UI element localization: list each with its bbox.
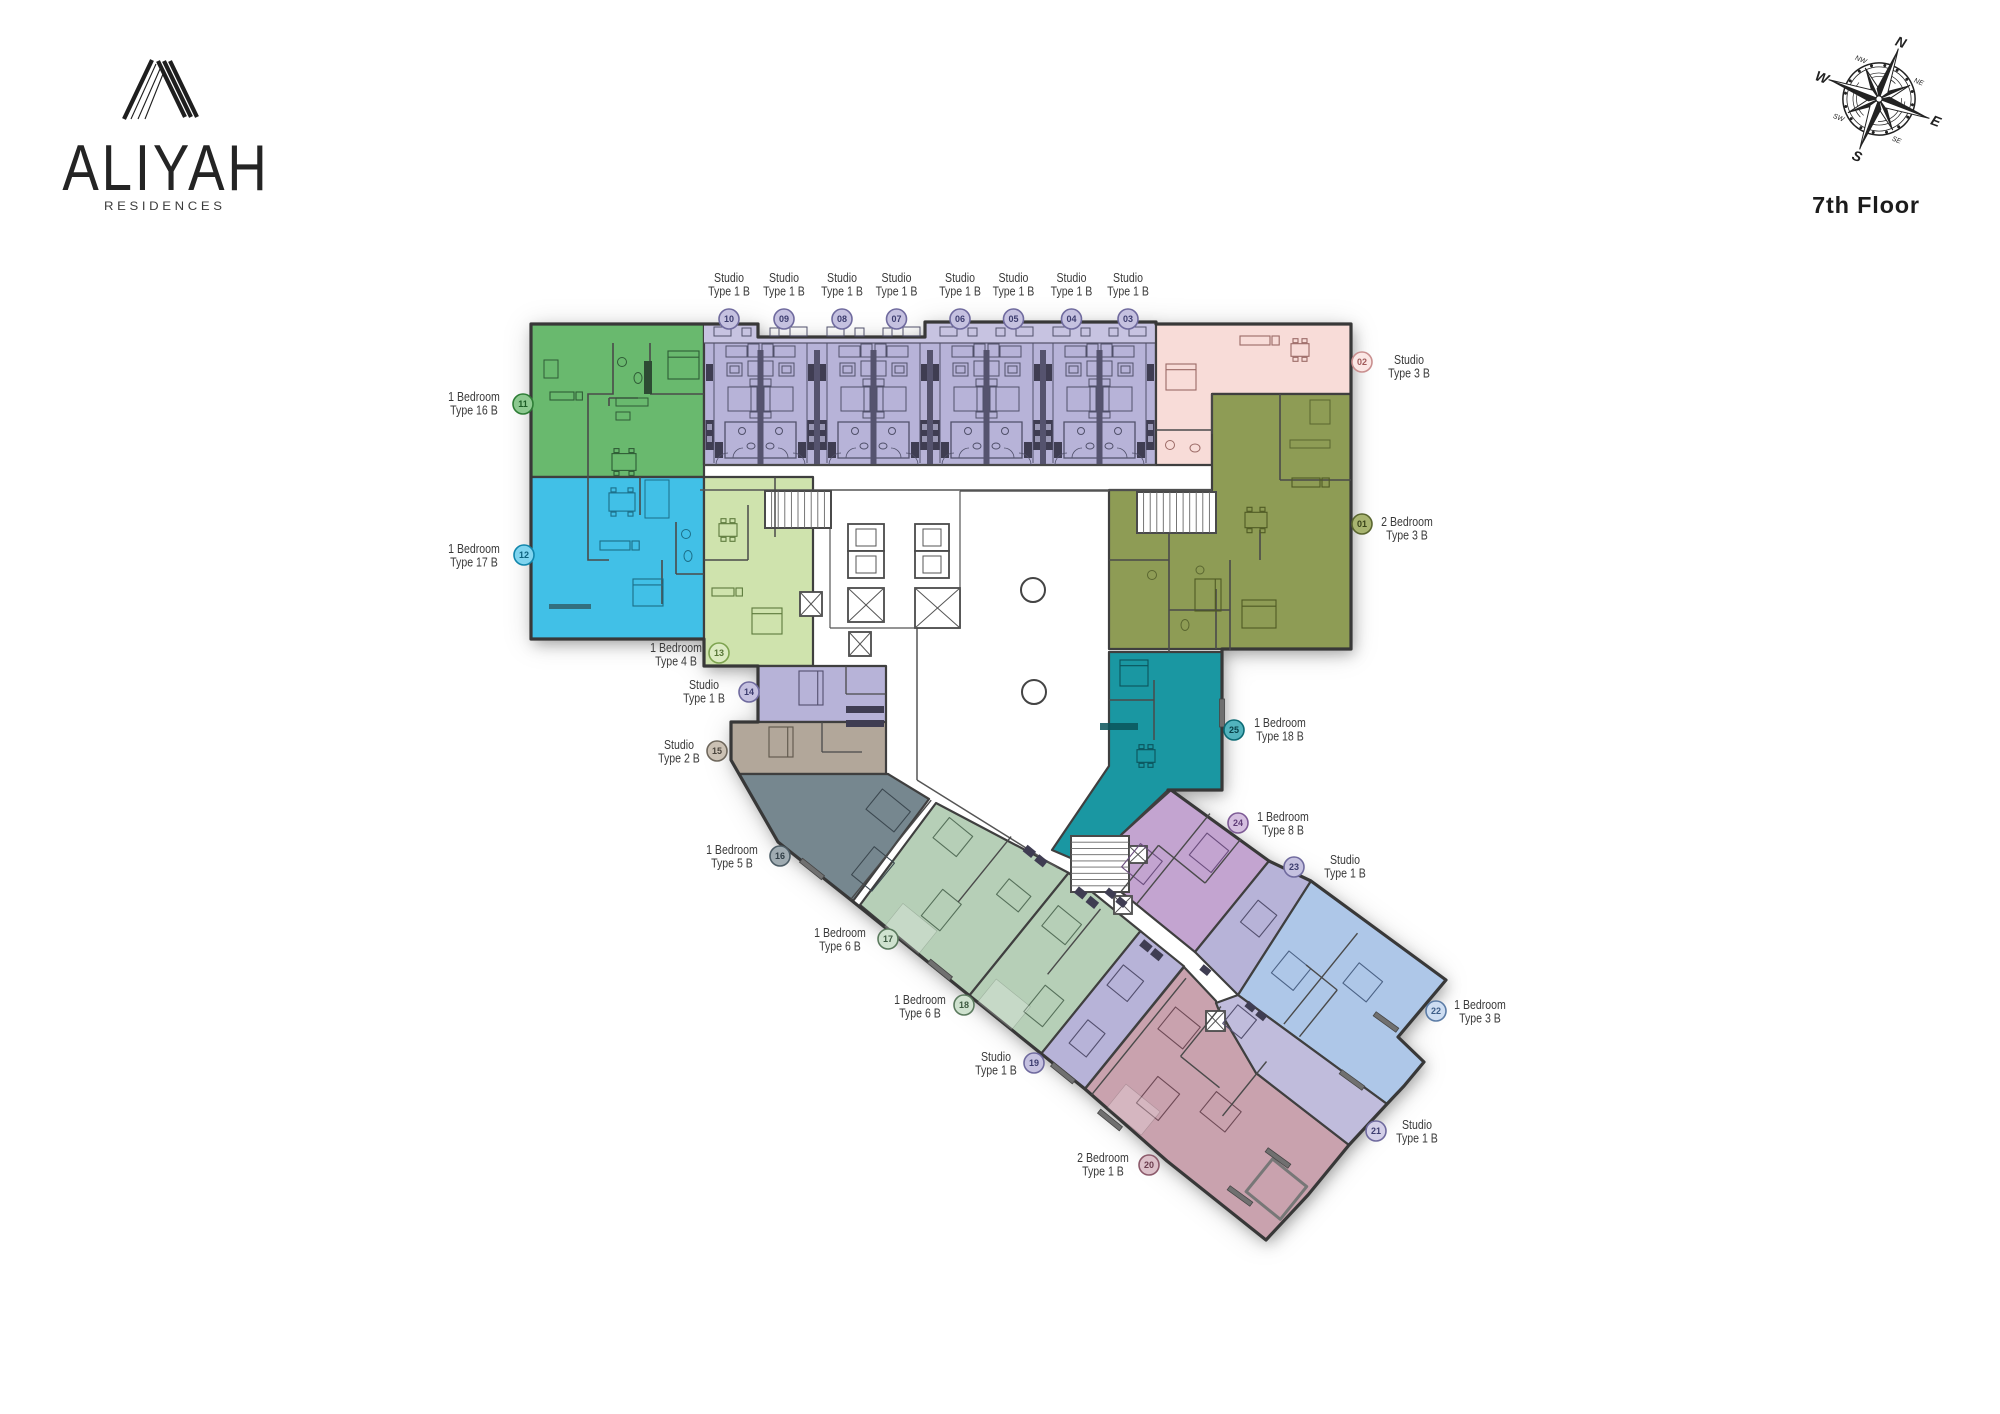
svg-text:Type 16 B: Type 16 B [450,404,498,418]
svg-text:Type 1 B: Type 1 B [993,285,1035,299]
svg-text:11: 11 [518,399,528,409]
svg-text:20: 20 [1144,1160,1154,1170]
svg-text:10: 10 [724,314,734,324]
svg-text:Type 8 B: Type 8 B [1262,824,1304,838]
svg-text:16: 16 [775,851,785,861]
svg-text:Type 6 B: Type 6 B [819,940,861,954]
svg-text:Type 1 B: Type 1 B [876,285,918,299]
svg-text:09: 09 [779,314,789,324]
svg-text:Type 1 B: Type 1 B [763,285,805,299]
svg-text:Type 1 B: Type 1 B [1082,1165,1124,1179]
svg-text:Studio: Studio [769,271,799,285]
svg-text:Studio: Studio [1402,1118,1432,1132]
svg-text:Studio: Studio [1394,353,1424,367]
svg-text:Studio: Studio [1113,271,1143,285]
svg-text:1 Bedroom: 1 Bedroom [894,993,946,1007]
svg-text:24: 24 [1233,818,1243,828]
svg-text:Type 1 B: Type 1 B [1324,867,1366,881]
svg-text:Type 3 B: Type 3 B [1459,1012,1501,1026]
svg-text:Type 1 B: Type 1 B [821,285,863,299]
svg-text:02: 02 [1357,357,1367,367]
svg-text:Type 17 B: Type 17 B [450,556,498,570]
svg-text:13: 13 [714,648,724,658]
svg-text:2 Bedroom: 2 Bedroom [1077,1151,1129,1165]
svg-text:1 Bedroom: 1 Bedroom [1254,716,1306,730]
svg-text:1 Bedroom: 1 Bedroom [814,926,866,940]
svg-text:1 Bedroom: 1 Bedroom [1257,810,1309,824]
svg-text:R E S I D E N C E S: R E S I D E N C E S [104,201,222,213]
svg-text:05: 05 [1008,314,1018,324]
svg-text:21: 21 [1371,1126,1381,1136]
svg-text:1 Bedroom: 1 Bedroom [650,641,702,655]
svg-text:ALIYAH: ALIYAH [62,132,269,205]
svg-text:Type 1 B: Type 1 B [1396,1132,1438,1146]
svg-text:Type 4 B: Type 4 B [655,655,697,669]
svg-text:12: 12 [519,550,529,560]
svg-text:Type 1 B: Type 1 B [975,1064,1017,1078]
svg-text:04: 04 [1066,314,1076,324]
svg-text:03: 03 [1123,314,1133,324]
svg-text:7th Floor: 7th Floor [1812,192,1920,218]
svg-text:Studio: Studio [827,271,857,285]
svg-text:Studio: Studio [689,678,719,692]
svg-text:Type 5 B: Type 5 B [711,857,753,871]
svg-text:Type 2 B: Type 2 B [658,752,700,766]
svg-text:19: 19 [1029,1058,1039,1068]
svg-text:2 Bedroom: 2 Bedroom [1381,515,1433,529]
svg-text:01: 01 [1357,519,1367,529]
svg-text:Type 1 B: Type 1 B [1107,285,1149,299]
svg-text:1 Bedroom: 1 Bedroom [448,542,500,556]
svg-text:Type 1 B: Type 1 B [1051,285,1093,299]
svg-text:Studio: Studio [945,271,975,285]
svg-text:1 Bedroom: 1 Bedroom [1454,998,1506,1012]
svg-text:Type 1 B: Type 1 B [939,285,981,299]
svg-text:Studio: Studio [664,738,694,752]
svg-text:08: 08 [837,314,847,324]
svg-text:Type 18 B: Type 18 B [1256,730,1304,744]
svg-text:Type 1 B: Type 1 B [683,692,725,706]
svg-text:18: 18 [959,1000,969,1010]
svg-text:Type 6 B: Type 6 B [899,1007,941,1021]
svg-text:Type 3 B: Type 3 B [1386,529,1428,543]
svg-text:Type 1 B: Type 1 B [708,285,750,299]
svg-text:Studio: Studio [1057,271,1087,285]
svg-text:22: 22 [1431,1006,1441,1016]
svg-text:17: 17 [883,934,893,944]
svg-text:23: 23 [1289,862,1299,872]
svg-text:1 Bedroom: 1 Bedroom [448,390,500,404]
svg-text:1 Bedroom: 1 Bedroom [706,843,758,857]
svg-text:07: 07 [891,314,901,324]
svg-text:15: 15 [712,746,722,756]
svg-text:Studio: Studio [981,1050,1011,1064]
svg-text:Studio: Studio [882,271,912,285]
svg-text:25: 25 [1229,725,1239,735]
svg-text:Type 3 B: Type 3 B [1388,367,1430,381]
svg-text:Studio: Studio [1330,853,1360,867]
svg-text:06: 06 [955,314,965,324]
svg-text:14: 14 [744,687,754,697]
svg-text:Studio: Studio [714,271,744,285]
svg-text:Studio: Studio [998,271,1028,285]
